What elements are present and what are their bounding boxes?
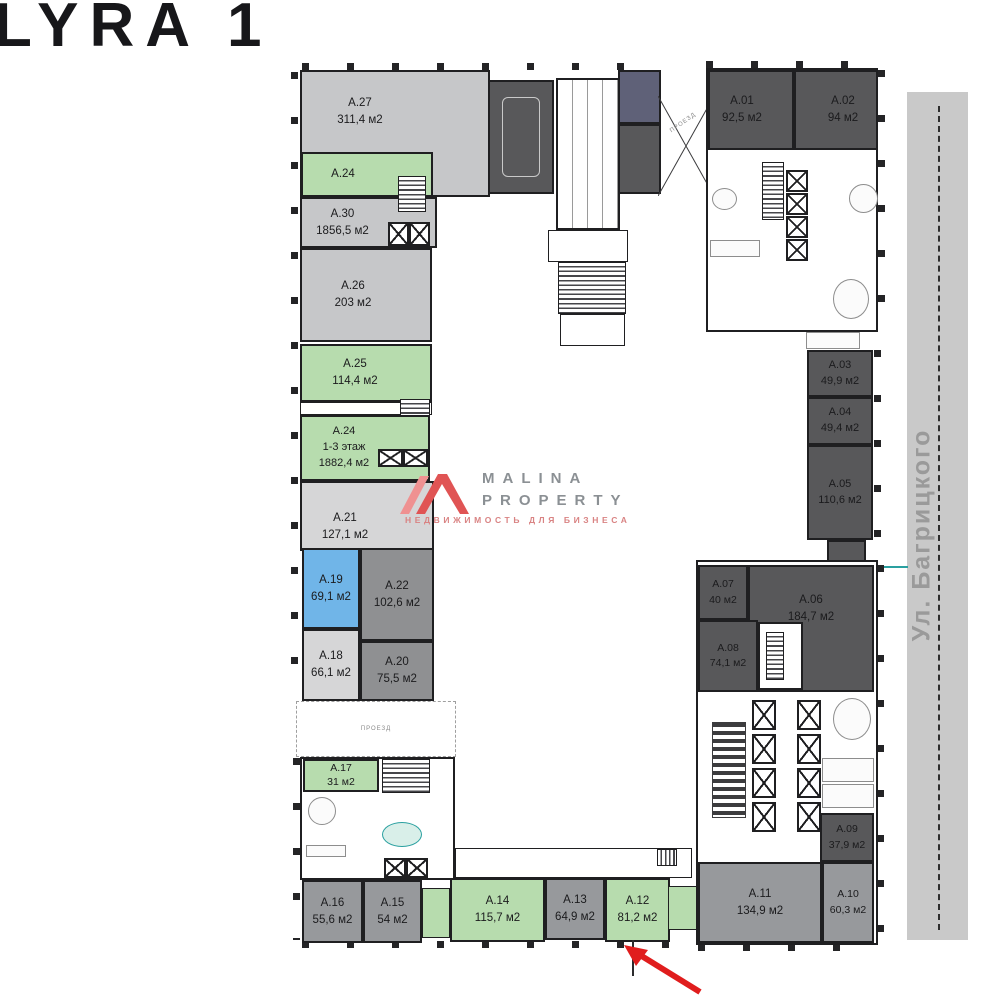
- unit-area: 203 м2: [335, 295, 372, 312]
- unit-id: A.10: [837, 887, 859, 902]
- round-table-icon: [308, 797, 336, 825]
- connector-rooms: [806, 332, 860, 349]
- elevator-icon: [384, 858, 406, 878]
- elevator-icon: [752, 734, 776, 764]
- unit-id: A.04: [829, 405, 852, 421]
- unit-area: 49,4 м2: [821, 421, 859, 437]
- unit-area: 115,7 м2: [475, 910, 520, 927]
- kitchen-counter: [710, 240, 760, 257]
- unit-area: 134,9 м2: [737, 903, 783, 920]
- pointer-arrow: [600, 930, 720, 1006]
- unit-id: A.06: [799, 592, 823, 609]
- unit-area: 66,1 м2: [311, 665, 351, 682]
- column-markers: [698, 944, 876, 951]
- unit-area: 114,4 м2: [332, 373, 377, 390]
- unit-id: A.12: [626, 893, 650, 910]
- elevator-icon: [797, 768, 821, 798]
- elevator-icon: [786, 239, 808, 261]
- project-title: LYRA 1: [0, 0, 273, 61]
- unit-a17[interactable]: A.17 31 м2: [303, 759, 379, 792]
- unit-area: 311,4 м2: [337, 112, 382, 129]
- elevator-icon: [406, 858, 428, 878]
- unit-a15[interactable]: A.15 54 м2: [363, 880, 422, 943]
- unit-id: A.21: [333, 510, 357, 527]
- unit-area: 81,2 м2: [618, 910, 658, 927]
- unit-id: A.14: [486, 893, 510, 910]
- elevator-icon: [752, 802, 776, 832]
- stairs-icon: [398, 176, 426, 212]
- unit-id: A.24: [331, 166, 355, 183]
- atrium-landing: [560, 314, 625, 346]
- unit-id: A.09: [836, 822, 858, 837]
- unit-id: A.25: [343, 356, 367, 373]
- round-table-icon: [849, 184, 878, 213]
- elevator-icon: [752, 700, 776, 730]
- unit-a16[interactable]: A.16 55,6 м2: [302, 880, 363, 943]
- unit-a19[interactable]: A.19 69,1 м2: [302, 548, 360, 629]
- unit-area: 37,9 м2: [829, 838, 865, 853]
- unit-a07[interactable]: A.07 40 м2: [698, 565, 748, 620]
- unit-area: 94 м2: [828, 110, 858, 127]
- column-markers: [878, 70, 885, 332]
- conference-table: [712, 722, 746, 818]
- unit-area: 102,6 м2: [374, 595, 420, 612]
- unit-id: A.19: [319, 572, 343, 589]
- elevator-icon: [797, 700, 821, 730]
- unit-a14[interactable]: A.14 115,7 м2: [450, 878, 545, 942]
- elevator-icon: [378, 449, 403, 467]
- watermark-subtitle: НЕДВИЖИМОСТЬ ДЛЯ БИЗНЕСА: [405, 515, 631, 525]
- unit-area: 49,9 м2: [821, 374, 859, 390]
- elevator-icon: [403, 449, 428, 467]
- unit-area: 40 м2: [709, 593, 737, 608]
- stairs-icon: [558, 262, 626, 314]
- watermark: MALINA PROPERTY: [400, 468, 629, 516]
- unit-area: 92,5 м2: [722, 110, 762, 127]
- unit-floors: 1-3 этаж: [323, 440, 366, 456]
- unit-a25[interactable]: A.25 114,4 м2: [300, 344, 432, 402]
- elevator-icon: [786, 193, 808, 215]
- stairs-icon: [766, 632, 784, 680]
- unit-id: A.05: [829, 477, 852, 493]
- unit-a18[interactable]: A.18 66,1 м2: [302, 629, 360, 701]
- dining-table-icon: [712, 188, 737, 210]
- column-markers: [291, 72, 298, 700]
- spiral-stair-icon: [382, 822, 422, 847]
- unit-id: A.13: [563, 892, 587, 909]
- floor-plan-canvas: LYRA 1 Ул. Багрицкого A.27 311,4 м2 A.24…: [0, 0, 996, 1006]
- unit-id: A.24: [333, 424, 356, 440]
- column-markers: [302, 63, 658, 70]
- unit-id: A.20: [385, 654, 409, 671]
- atrium: [556, 78, 620, 230]
- column-markers: [874, 350, 881, 540]
- unit-area: 31 м2: [327, 776, 355, 789]
- unit-a02[interactable]: A.02 94 м2: [794, 70, 878, 150]
- elevator-icon: [797, 802, 821, 832]
- unit-area: 69,1 м2: [311, 589, 351, 606]
- unit-id: A.07: [712, 577, 734, 592]
- corridor-green: [422, 888, 450, 938]
- truck-icon: [502, 97, 540, 177]
- unit-id: A.01: [730, 93, 754, 110]
- passage-label: ПРОЕЗД: [361, 726, 391, 732]
- unit-id: A.27: [348, 95, 372, 112]
- street-name: Ул. Багрицкого: [908, 429, 937, 642]
- unit-id: A.11: [749, 886, 772, 903]
- small-room: [822, 758, 874, 782]
- unit-a22[interactable]: A.22 102,6 м2: [360, 548, 434, 641]
- elevator-icon: [409, 222, 430, 246]
- unit-id: A.18: [319, 648, 343, 665]
- unit-navy[interactable]: [618, 70, 661, 124]
- column-markers: [293, 758, 300, 940]
- loading-dock: [488, 80, 554, 194]
- unit-id: A.17: [330, 762, 352, 775]
- unit-a13[interactable]: A.13 64,9 м2: [545, 878, 605, 940]
- column-markers: [877, 565, 884, 943]
- lounge-circle-icon: [833, 698, 871, 740]
- unit-id: A.02: [831, 93, 855, 110]
- stairs-icon: [382, 759, 430, 793]
- elevator-icon: [752, 768, 776, 798]
- unit-id: A.30: [331, 206, 355, 223]
- unit-area: 1856,5 м2: [316, 223, 369, 240]
- atrium-landing: [548, 230, 628, 262]
- unit-a01[interactable]: A.01 92,5 м2: [708, 70, 794, 150]
- unit-area: 74,1 м2: [710, 656, 746, 671]
- stairs-icon: [400, 399, 430, 416]
- watermark-brand-1: MALINA: [482, 468, 629, 490]
- stairs-icon: [657, 849, 677, 866]
- unit-area: 127,1 м2: [322, 527, 368, 544]
- unit-a10[interactable]: A.10 60,3 м2: [822, 862, 874, 943]
- elevator-icon: [786, 216, 808, 238]
- unit-id: A.03: [829, 358, 852, 374]
- unit-area: 1882,4 м2: [319, 456, 369, 472]
- passage-zone: ПРОЕЗД: [296, 701, 456, 757]
- unit-a04[interactable]: A.04 49,4 м2: [807, 397, 873, 445]
- unit-area: 54 м2: [377, 912, 407, 929]
- reception-desk: [306, 845, 346, 857]
- stairs-icon: [762, 162, 784, 220]
- unit-id: A.15: [381, 895, 405, 912]
- unit-area: 110,6 м2: [818, 493, 861, 509]
- unit-id: A.08: [717, 641, 739, 656]
- elevator-icon: [797, 734, 821, 764]
- unit-a09[interactable]: A.09 37,9 м2: [820, 813, 874, 862]
- unit-id: A.26: [341, 278, 365, 295]
- small-room: [822, 784, 874, 808]
- watermark-brand-2: PROPERTY: [482, 490, 629, 512]
- unit-a26[interactable]: A.26 203 м2: [300, 248, 432, 342]
- elevator-icon: [388, 222, 409, 246]
- unit-a03[interactable]: A.03 49,9 м2: [807, 350, 873, 397]
- core-room: [618, 124, 661, 194]
- unit-a08[interactable]: A.08 74,1 м2: [698, 620, 758, 692]
- unit-id: A.16: [321, 895, 345, 912]
- lounge-circle-icon: [833, 279, 869, 319]
- unit-a05[interactable]: A.05 110,6 м2: [807, 445, 873, 540]
- unit-area: 75,5 м2: [377, 671, 417, 688]
- unit-a20[interactable]: A.20 75,5 м2: [360, 641, 434, 701]
- unit-id: A.22: [385, 578, 409, 595]
- column-markers: [706, 61, 878, 68]
- unit-area: 55,6 м2: [313, 912, 353, 929]
- unit-area: 64,9 м2: [555, 909, 595, 926]
- street-center-line: [938, 106, 940, 930]
- unit-area: 60,3 м2: [830, 903, 866, 918]
- elevator-icon: [786, 170, 808, 192]
- malina-logo-icon: [400, 468, 472, 516]
